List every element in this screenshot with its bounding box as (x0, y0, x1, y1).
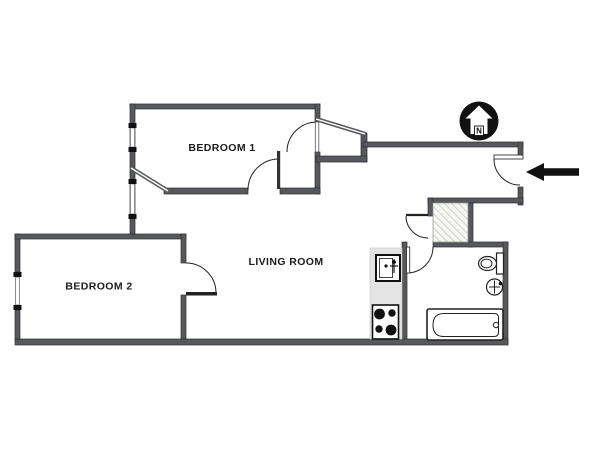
wall-corridor-top (363, 142, 523, 147)
wall-bedroom2-left-upper (15, 234, 20, 272)
kitchen (370, 248, 402, 339)
wall-bathroom-top (433, 242, 508, 247)
wall-bedroom2-right-lower (181, 295, 186, 339)
entry-arrow-icon (526, 163, 579, 181)
wall-bedroom1-bottom-right (280, 188, 320, 194)
wall-shaft-right (468, 203, 473, 247)
stove-icon (373, 305, 399, 339)
kitchen-sink-icon (376, 255, 400, 281)
angled-walls (131, 119, 365, 191)
door-bedroom1-interior (248, 151, 280, 190)
door-entry (494, 155, 523, 185)
door-bedroom2 (186, 263, 217, 296)
north-compass-icon: N (460, 102, 499, 141)
wall-vestibule-bottom (316, 156, 367, 162)
wall-bedroom1-bottom-left (164, 188, 248, 194)
wall-shaft-left-stub (428, 198, 433, 216)
floor-plan: N BEDROOM 1 BEDROOM 2 LIVING ROOM (0, 0, 600, 450)
bathroom (427, 253, 504, 340)
toilet-icon (479, 253, 504, 274)
door-bedroom1-exit (287, 122, 319, 152)
wall-bedroom2-top (15, 234, 186, 239)
wall-corridor-bottom (428, 198, 523, 203)
wall-bedroom1-top (130, 104, 320, 109)
bedroom2-label: BEDROOM 2 (65, 281, 132, 293)
bathroom-sink-icon (487, 279, 503, 295)
wall-bedroom2-right-upper (181, 234, 186, 263)
wall-entry-right-upper (518, 142, 523, 155)
compass-north-letter: N (476, 127, 482, 136)
door-closet (406, 215, 428, 238)
living-room-label: LIVING ROOM (249, 256, 324, 268)
wall-bedroom2-left-lower (15, 310, 20, 339)
shaft-hatched-area (433, 203, 468, 242)
bedroom1-label: BEDROOM 1 (188, 142, 255, 154)
bathtub-icon (427, 309, 503, 340)
door-bathroom (407, 247, 434, 273)
